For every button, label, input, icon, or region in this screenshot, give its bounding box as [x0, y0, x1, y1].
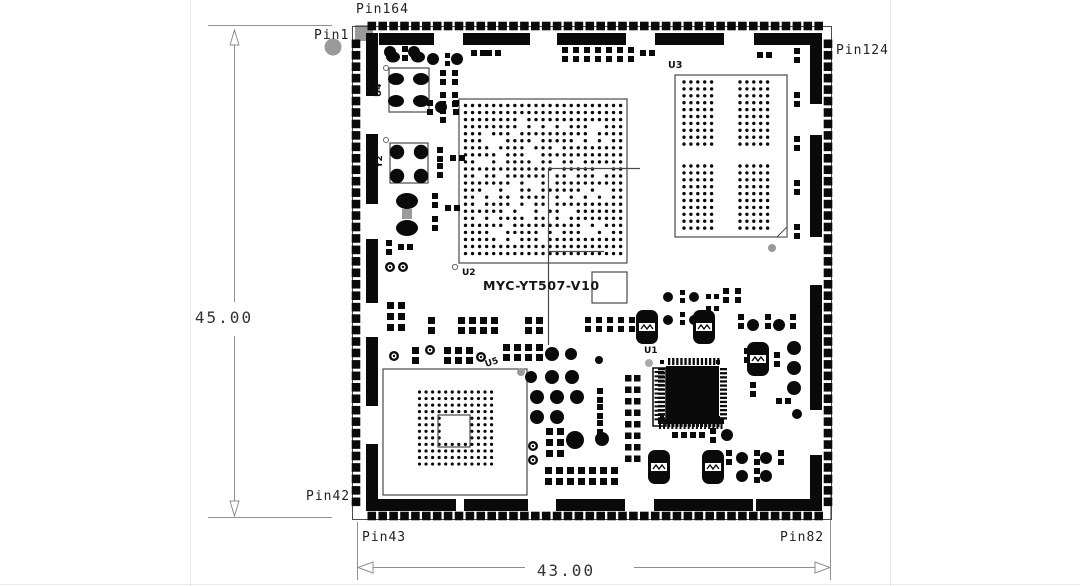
u5-bga-ball [418, 397, 421, 400]
u2-bga-ball [499, 167, 502, 170]
u2-bga-ball [492, 238, 495, 241]
u2-bga-ball [577, 146, 580, 149]
pad-square [589, 478, 596, 485]
ground-bar-top [463, 33, 530, 45]
u2-bga-ball [598, 139, 601, 142]
ground-bar-right [810, 135, 822, 237]
pad-pair-v [432, 216, 438, 222]
u3-bga-ball [682, 171, 685, 174]
u3-bga-ball [703, 122, 706, 125]
connector-pin [675, 424, 677, 429]
u2-bga-ball [471, 167, 474, 170]
u2-bga-ball [584, 245, 587, 248]
u3-bga-ball [710, 226, 713, 229]
castellation-pad-top [651, 22, 660, 31]
u2-bga-ball [598, 153, 601, 156]
u2-bga-ball [471, 231, 474, 234]
pad-pair-v [765, 323, 771, 329]
u3-bga-ball [710, 185, 713, 188]
castellation-pad-right [824, 200, 833, 209]
u2-bga-ball [591, 160, 594, 163]
u3-bga-ball [689, 164, 692, 167]
u2-bga-ball [570, 195, 573, 198]
u2-bga-ball [464, 104, 467, 107]
u3-bga-ball [766, 142, 769, 145]
u2-bga-ball [541, 111, 544, 114]
u3-bga-ball [766, 178, 769, 181]
castellation-pad-top [814, 22, 823, 31]
u2-bga-ball [577, 181, 580, 184]
u5-bga-ball [483, 404, 486, 407]
pad-pair-v [597, 388, 603, 394]
castellation-pad-top [520, 22, 529, 31]
castellation-pad-left [352, 269, 361, 278]
castellation-pad-bottom [651, 512, 660, 521]
castellation-pad-right [824, 269, 833, 278]
u3-bga-ball [745, 122, 748, 125]
u2-bga-ball [598, 118, 601, 121]
u5-bga-ball [418, 449, 421, 452]
pad-pair-v [453, 100, 459, 106]
u2-bga-ball [612, 118, 615, 121]
pad-pair-v [585, 326, 591, 332]
u2-bga-ball [527, 174, 530, 177]
pad-square [625, 398, 632, 405]
pad-pair-v [606, 56, 612, 62]
pad-pair-h [690, 432, 696, 438]
u3-bga-ball [682, 108, 685, 111]
u2-bga-ball [605, 160, 608, 163]
u3-bga-ball [689, 178, 692, 181]
pad-pair-h [480, 50, 486, 56]
castellation-pad-left [352, 337, 361, 346]
castellation-pad-top [553, 22, 562, 31]
pad-round [595, 356, 603, 364]
u3-bga-ball [703, 108, 706, 111]
u5-bga-ball [464, 443, 467, 446]
connector-pin [655, 397, 665, 399]
u2-bga-ball [612, 195, 615, 198]
u3-bga-ball [738, 108, 741, 111]
u2-bga-ball [513, 174, 516, 177]
u3-bga-ball [738, 220, 741, 223]
castellation-pad-left [352, 257, 361, 266]
u5-center-outline [438, 415, 470, 447]
pad-round [663, 315, 673, 325]
castellation-pad-bottom [596, 512, 605, 521]
pad-square [634, 398, 641, 405]
u2-bga-ball [570, 139, 573, 142]
u2-bga-ball [612, 139, 615, 142]
castellation-pad-bottom [400, 512, 409, 521]
u2-bga-ball [464, 217, 467, 220]
u2-bga-ball [563, 245, 566, 248]
u2-bga-ball [584, 132, 587, 135]
pad-pair-v [536, 344, 543, 351]
u3-bga-ball [696, 192, 699, 195]
u5-bga-ball [424, 417, 427, 420]
pad-pair-h [706, 294, 711, 299]
pad-square [634, 456, 641, 463]
u3-bga-ball [682, 206, 685, 209]
ground-bar-bottom [654, 499, 753, 511]
u2-bga-ball [499, 111, 502, 114]
connector-pin [708, 424, 710, 429]
u2-bga-ball [619, 188, 622, 191]
u2-bga-ball [605, 217, 608, 220]
u2-bga-ball [555, 174, 558, 177]
castellation-pad-top [477, 22, 486, 31]
u3-bga-ball [745, 164, 748, 167]
pad-square [578, 478, 585, 485]
u2-bga-ball [520, 139, 523, 142]
u1-pin-top [689, 358, 691, 365]
pad-pair-v [445, 61, 450, 66]
u2-bga-ball [534, 118, 537, 121]
u2-bga-ball [612, 132, 615, 135]
pad-round [550, 390, 564, 404]
u2-bga-ball [464, 252, 467, 255]
u3-bga-ball [745, 220, 748, 223]
u2-bga-ball [591, 188, 594, 191]
u3-bga-ball [752, 87, 755, 90]
pad-pair-v [437, 163, 443, 169]
connector-pin [721, 424, 723, 429]
u5-bga-ball [464, 462, 467, 465]
u3-bga-ball [689, 94, 692, 97]
u2-bga-ball [612, 160, 615, 163]
u2-bga-ball [555, 195, 558, 198]
u2-bga-ball [478, 188, 481, 191]
u2-bga-ball [527, 252, 530, 255]
pad-square [578, 467, 585, 474]
u1-pin-top [697, 358, 699, 365]
u5-bga-ball [424, 449, 427, 452]
u3-bga-ball [752, 192, 755, 195]
pad-pair-v [584, 47, 590, 53]
pad-pair-v [680, 290, 685, 295]
u5-bga-ball [451, 397, 454, 400]
u3-bga-ball [766, 122, 769, 125]
u5-bga-ball [424, 404, 427, 407]
u3-bga-ball [682, 87, 685, 90]
u5-bga-ball [444, 404, 447, 407]
pad-pair-v [427, 109, 433, 115]
pad-pair-v [466, 357, 473, 364]
u2-bga-ball [584, 153, 587, 156]
u2-bga-ball [584, 139, 587, 142]
u3-bga-ball [752, 108, 755, 111]
u2-bga-ball [485, 174, 488, 177]
castellation-pad-bottom [727, 512, 736, 521]
pad-pair-v [480, 327, 487, 334]
pad-pair-v [386, 249, 392, 255]
u5-bga-ball [490, 443, 493, 446]
pad-pair-v [794, 101, 800, 107]
u2-bga-ball [570, 203, 573, 206]
pad-pair-v [437, 147, 443, 153]
pad-pair-h [640, 50, 646, 56]
u5-bga-ball [457, 410, 460, 413]
castellation-pad-right [824, 349, 833, 358]
u2-bga-ball [499, 217, 502, 220]
u2-bga-ball [527, 167, 530, 170]
u3-bga-ball [703, 220, 706, 223]
u2-bga-ball [555, 139, 558, 142]
u2-bga-ball [605, 181, 608, 184]
u5-bga-ball [457, 443, 460, 446]
u2-bga-ball [513, 139, 516, 142]
castellation-pad-bottom [520, 512, 529, 521]
pad-pair-v [595, 56, 601, 62]
u3-bga-ball [682, 185, 685, 188]
u2-bga-ball [605, 245, 608, 248]
u2-bga-ball [577, 217, 580, 220]
u2-bga-ball [520, 104, 523, 107]
pad-round [565, 370, 579, 384]
u3-bga-ball [710, 122, 713, 125]
pad-pair-h [766, 52, 772, 58]
castellation-pad-bottom [760, 512, 769, 521]
u3-bga-ball [745, 129, 748, 132]
connector-pin [655, 388, 665, 390]
u3-bga-ball [689, 206, 692, 209]
u3-bga-ball [759, 192, 762, 195]
u5-bga-ball [438, 397, 441, 400]
u3-bga-ball [703, 94, 706, 97]
u3-bga-ball [738, 171, 741, 174]
u5-bga-ball [477, 443, 480, 446]
u3-bga-ball [682, 199, 685, 202]
u5-bga-ball [431, 410, 434, 413]
castellation-pad-bottom [771, 512, 780, 521]
u2-bga-ball [555, 181, 558, 184]
castellation-pad-left [352, 143, 361, 152]
u2-bga-ball [555, 252, 558, 255]
pad-pair-v [628, 56, 634, 62]
u2-bga-ball [619, 195, 622, 198]
pad-pair-v [444, 347, 451, 354]
u2-bga-ball [570, 160, 573, 163]
castellation-pad-bottom [705, 512, 714, 521]
u2-bga-ball [499, 210, 502, 213]
pad-pair-v [536, 354, 543, 361]
u3-bga-ball [766, 206, 769, 209]
u5-bga-ball [483, 449, 486, 452]
u2-bga-ball [570, 125, 573, 128]
u3-bga-ball [759, 178, 762, 181]
u3-bga-ball [745, 136, 748, 139]
y2-pin1-ring [384, 138, 389, 143]
pad-square [634, 375, 641, 382]
u2-bga-ball [527, 231, 530, 234]
u2-bga-ball [499, 224, 502, 227]
u2-bga-ball [548, 132, 551, 135]
u2-bga-ball [598, 217, 601, 220]
u2-bga-ball [577, 132, 580, 135]
u2-bga-ball [471, 118, 474, 121]
pad-pair-v [440, 92, 446, 98]
castellation-pad-right [824, 51, 833, 60]
pad-pair-v [774, 361, 780, 367]
pad-round [408, 46, 420, 58]
pad-pair-v [573, 47, 579, 53]
osc-center-pad [402, 209, 412, 219]
castellation-pad-right [824, 131, 833, 140]
pad-pair-v [596, 326, 602, 332]
pad-square [634, 410, 641, 417]
u2-bga-ball [612, 174, 615, 177]
u3-bga-ball [759, 185, 762, 188]
u2-bga-ball [612, 217, 615, 220]
castellation-pad-bottom [695, 512, 704, 521]
u2-bga-ball [464, 195, 467, 198]
board-title: MYC-YT507-V10 [483, 278, 600, 293]
u5-bga-ball [483, 430, 486, 433]
u5-bga-ball [470, 404, 473, 407]
u2-bga-ball [492, 132, 495, 135]
oval-pad [413, 95, 429, 107]
u1-pin-right [720, 389, 727, 391]
u2-bga-ball [619, 231, 622, 234]
u2-bga-ball [520, 217, 523, 220]
u1-pin-right [720, 393, 727, 395]
u3-bga-ball [703, 171, 706, 174]
castellation-pad-left [352, 463, 361, 472]
u2-bga-ball [563, 174, 566, 177]
u2-bga-ball [577, 231, 580, 234]
pad-pair-h [757, 52, 763, 58]
u3-bga-ball [710, 129, 713, 132]
u2-bga-ball [506, 146, 509, 149]
pad-square [557, 428, 564, 435]
castellation-pad-right [824, 97, 833, 106]
pad-pair-v [794, 57, 800, 63]
castellation-pad-right [824, 383, 833, 392]
castellation-pad-top [433, 22, 442, 31]
u2-bga-ball [541, 174, 544, 177]
u5-bga-ball [470, 390, 473, 393]
castellation-pad-top [705, 22, 714, 31]
u2-bga-ball [520, 195, 523, 198]
pad-round [550, 410, 564, 424]
u2-bga-ball [584, 195, 587, 198]
pad-round [384, 46, 396, 58]
castellation-pad-top [771, 22, 780, 31]
u5-bga-ball [418, 462, 421, 465]
u3-bga-ball [703, 226, 706, 229]
u2-bga-ball [563, 153, 566, 156]
u2-bga-ball [619, 252, 622, 255]
u5-bga-ball [470, 449, 473, 452]
u2-bga-ball [513, 167, 516, 170]
u3-bga-ball [682, 129, 685, 132]
u3-bga-ball [689, 122, 692, 125]
u2-bga-ball [612, 238, 615, 241]
pad-pair-v [525, 354, 532, 361]
u1-pin-right [720, 384, 727, 386]
u3-bga-ball [696, 178, 699, 181]
u2-bga-ball [464, 210, 467, 213]
u2-bga-ball [492, 181, 495, 184]
u1-pin-top [713, 358, 715, 365]
u2-bga-ball [584, 210, 587, 213]
u1-pin-right [720, 401, 727, 403]
u3-bga-ball [696, 87, 699, 90]
u5-bga-ball [457, 404, 460, 407]
u2-bga-ball [506, 167, 509, 170]
u3-bga-ball [682, 136, 685, 139]
u3-bga-ball [696, 199, 699, 202]
pad-pair-v [754, 450, 760, 456]
u5-bga-ball [477, 404, 480, 407]
connector-pin [680, 424, 682, 429]
connector-pin [688, 424, 690, 429]
pad-pair-v [778, 459, 784, 465]
u2-bga-ball [478, 231, 481, 234]
u2-bga-ball [520, 203, 523, 206]
pin42-label: Pin42 [306, 489, 350, 504]
u3-bga-ball [738, 115, 741, 118]
pad-round [747, 319, 759, 331]
u5-bga-ball [490, 436, 493, 439]
pad-round [663, 292, 673, 302]
castellation-pad-bottom [738, 512, 747, 521]
u3-bga-ball [710, 213, 713, 216]
u3-bga-ball [766, 94, 769, 97]
u2-bga-ball [506, 195, 509, 198]
u2-bga-ball [563, 132, 566, 135]
u2-bga-ball [619, 181, 622, 184]
pad-pair-v [754, 459, 760, 465]
u5-bga-ball [424, 423, 427, 426]
connector-bar-h [658, 419, 724, 424]
u3-bga-ball [703, 80, 706, 83]
u3-bga-ball [766, 136, 769, 139]
u5-bga-ball [490, 456, 493, 459]
u2-bga-ball [506, 238, 509, 241]
y2-refdes: Y2 [375, 155, 385, 169]
u1-pin-right [720, 397, 727, 399]
castellation-pad-right [824, 234, 833, 243]
u2-bga-ball [598, 203, 601, 206]
castellation-pad-top [749, 22, 758, 31]
u3-bga-ball [689, 129, 692, 132]
u3-bga-ball [738, 87, 741, 90]
u5-refdes: U5 [484, 356, 500, 370]
u3-bga-ball [696, 94, 699, 97]
u5-bga-ball [424, 397, 427, 400]
u2-bga-ball [513, 210, 516, 213]
castellation-pad-bottom [389, 512, 398, 521]
castellation-pad-left [352, 360, 361, 369]
u3-bga-ball [759, 87, 762, 90]
u5-bga-ball [477, 423, 480, 426]
u5-bga-ball [483, 390, 486, 393]
connector-pin [655, 380, 665, 382]
pad-pair-v [427, 100, 433, 106]
u3-bga-ball [689, 87, 692, 90]
ground-bar-left [366, 239, 378, 303]
u5-bga-ball [490, 417, 493, 420]
u2-bga-ball [485, 252, 488, 255]
u2-bga-ball [591, 104, 594, 107]
u3-bga-ball [745, 87, 748, 90]
u2-bga-ball [499, 188, 502, 191]
u2-bga-ball [563, 104, 566, 107]
pad-pair-v [738, 314, 744, 320]
pad-pair-h [785, 398, 791, 404]
